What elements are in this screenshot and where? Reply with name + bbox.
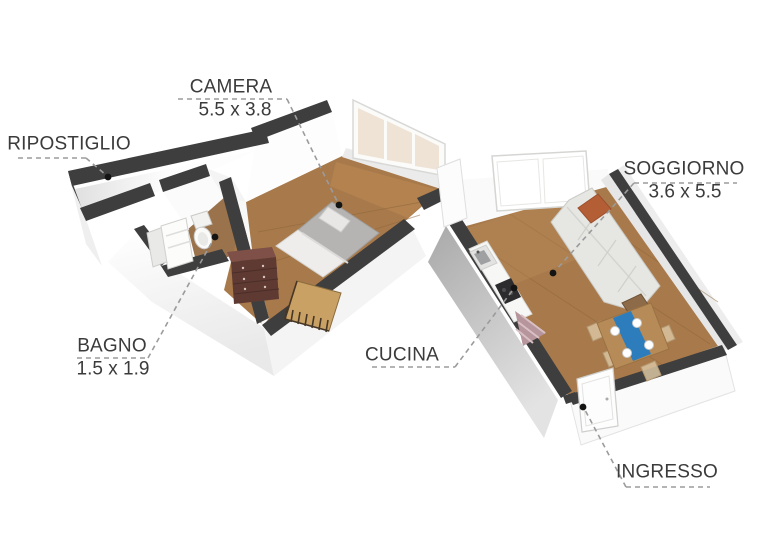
soggiorno-window-pane (497, 159, 541, 206)
dresser-front (231, 257, 279, 304)
room-dims-bagno: 1.5 x 1.9 (77, 360, 150, 379)
leader-dot-ripostiglio (105, 174, 112, 181)
leader-dot-ingresso (580, 404, 587, 411)
room-label-ingresso: INGRESSO (616, 463, 718, 482)
door-handle (606, 398, 609, 401)
entrance-door (577, 368, 618, 432)
stove-burner (502, 288, 506, 292)
floorplan-stage: RIPOSTIGLIO CAMERA 5.5 x 3.8 SOGGIORNO 3… (0, 0, 768, 543)
leader-dot-cucina (511, 285, 518, 292)
room-label-cucina: CUCINA (365, 346, 439, 365)
dresser (227, 247, 279, 304)
room-label-camera: CAMERA (190, 78, 273, 97)
plate (645, 341, 654, 350)
room-label-bagno: BAGNO (77, 337, 147, 356)
room-dims-camera: 5.5 x 3.8 (199, 101, 272, 120)
plate (633, 319, 642, 328)
leader-dot-camera (336, 202, 343, 209)
room-dims-soggiorno: 3.6 x 5.5 (649, 183, 722, 202)
room-label-soggiorno: SOGGIORNO (623, 160, 744, 179)
plate (623, 349, 632, 358)
faucet (477, 251, 480, 254)
leader-dot-soggiorno (550, 270, 557, 277)
leader-dot-bagno (212, 234, 219, 241)
plate (611, 327, 620, 336)
junction-door-panel (437, 159, 467, 227)
room-label-ripostiglio: RIPOSTIGLIO (7, 135, 131, 154)
